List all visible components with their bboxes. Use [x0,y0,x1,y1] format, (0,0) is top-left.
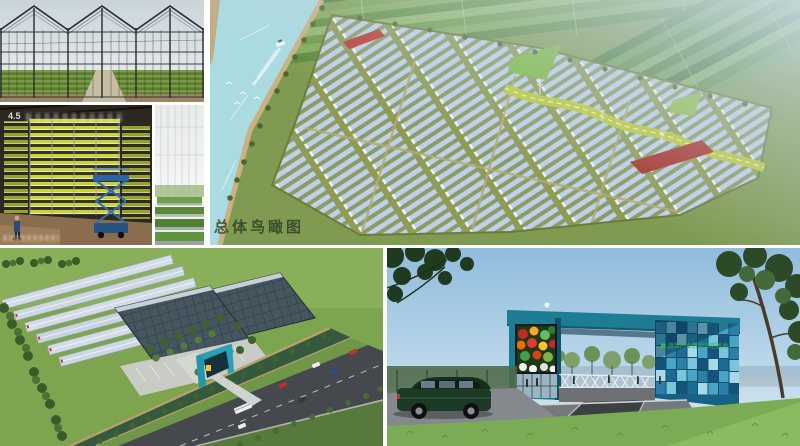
mosaic-pillar [655,320,739,410]
seedling-greenhouse-art [155,105,204,245]
photo-glass-greenhouse [0,0,204,102]
photo-seedling-greenhouse [155,105,204,245]
masterplan-caption: 总体鸟瞰图 [214,216,304,237]
seedling-trays [155,197,204,245]
photo-vertical-farm: 4.5 [0,105,152,245]
illegible-watermark [26,113,122,122]
vertical-farm-art [0,105,152,245]
moon-icon [545,303,550,308]
gate-sign-text: 蔬菜产业转型示范基地 [668,342,728,350]
campus-art [0,248,383,446]
render-entrance-gate: 蔬菜产业转型示范基地 [387,248,800,446]
illegible-caption [3,235,59,241]
atmospheric-haze [210,0,800,245]
render-masterplan-aerial: 总体鸟瞰图 [210,0,800,245]
project-image-collage: 4.5 [0,0,800,446]
gate-art: 蔬菜产业转型示范基地 [387,248,800,446]
led-screen-vegetables [517,326,558,373]
figure-number-badge: 4.5 [8,111,21,121]
glass-greenhouse-art [0,0,204,102]
gate-sign: 蔬菜产业转型示范基地 [661,342,728,350]
render-greenhouse-campus [0,248,383,446]
masterplan-art [210,0,800,245]
